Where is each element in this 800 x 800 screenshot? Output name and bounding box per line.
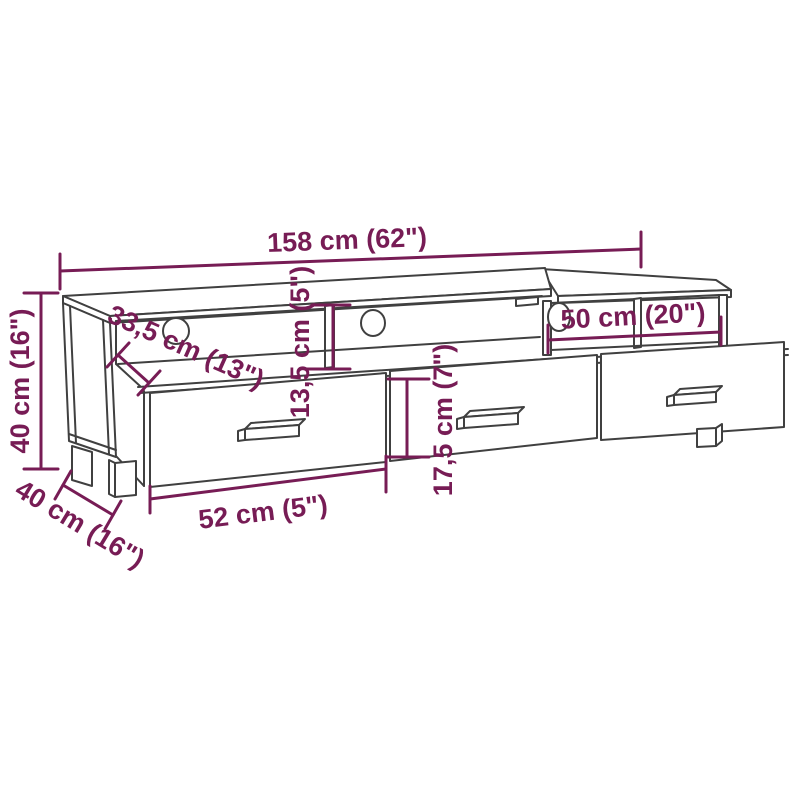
drawer-2-front: [390, 355, 597, 461]
dim-shelf-opening-label: 13,5 cm (5"): [285, 266, 315, 418]
shelf-floor-left-edge: [116, 364, 140, 386]
dim-drawer-height-label: 17,5 cm (7"): [428, 344, 458, 496]
tv-stand-dimension-diagram: 158 cm (62") 40 cm (16") 33,5 cm (13"): [0, 0, 800, 800]
dim-overall-height: 40 cm (16"): [5, 293, 58, 469]
top-junction-bracket: [516, 297, 538, 306]
handle-cap: [667, 395, 674, 406]
dim-overall-width-label: 158 cm (62"): [267, 222, 428, 258]
dim-drawer-width-label: 52 cm (5"): [197, 489, 330, 535]
cable-hole-middle: [361, 310, 385, 336]
leg-front-left: [115, 461, 136, 497]
handle-cap: [457, 417, 464, 429]
leg-back-left: [72, 446, 92, 486]
dim-right-shelf-label: 50 cm (20"): [560, 297, 706, 335]
diagram-page: 158 cm (62") 40 cm (16") 33,5 cm (13"): [0, 0, 800, 800]
dim-overall-height-label: 40 cm (16"): [5, 309, 35, 454]
handle-front: [674, 392, 716, 405]
handle-cap: [238, 429, 245, 441]
